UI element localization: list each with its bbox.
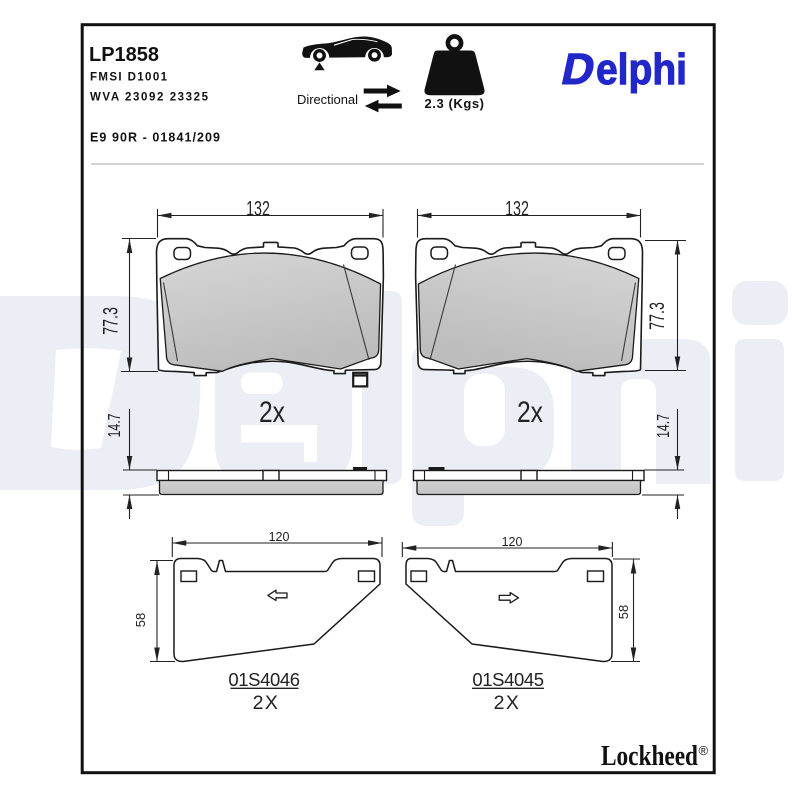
svg-text:120: 120	[502, 535, 523, 549]
svg-text:Directional: Directional	[297, 92, 358, 107]
svg-text:®: ®	[699, 743, 709, 758]
svg-text:elphi: elphi	[596, 45, 687, 94]
svg-text:132: 132	[246, 197, 270, 220]
svg-text:2X: 2X	[253, 692, 280, 714]
svg-text:Lockheed: Lockheed	[601, 740, 698, 772]
svg-text:01S4045: 01S4045	[472, 669, 543, 690]
svg-text:FMSI D1001: FMSI D1001	[90, 72, 168, 84]
svg-text:WVA 23092 23325: WVA 23092 23325	[90, 92, 209, 104]
svg-text:LP1858: LP1858	[89, 44, 159, 66]
svg-text:2x: 2x	[259, 395, 285, 429]
svg-text:2X: 2X	[494, 692, 521, 714]
svg-text:2.3 (Kgs): 2.3 (Kgs)	[425, 96, 485, 111]
svg-text:58: 58	[616, 605, 631, 619]
svg-text:132: 132	[505, 197, 529, 220]
svg-text:77.3: 77.3	[645, 302, 668, 330]
svg-text:14.7: 14.7	[105, 414, 125, 438]
svg-text:01S4046: 01S4046	[228, 669, 299, 690]
svg-text:77.3: 77.3	[99, 307, 122, 335]
svg-text:120: 120	[269, 530, 290, 544]
svg-text:58: 58	[133, 613, 148, 627]
svg-text:14.7: 14.7	[654, 414, 674, 438]
svg-text:E9 90R - 01841/209: E9 90R - 01841/209	[90, 131, 220, 145]
svg-text:2x: 2x	[517, 395, 543, 429]
